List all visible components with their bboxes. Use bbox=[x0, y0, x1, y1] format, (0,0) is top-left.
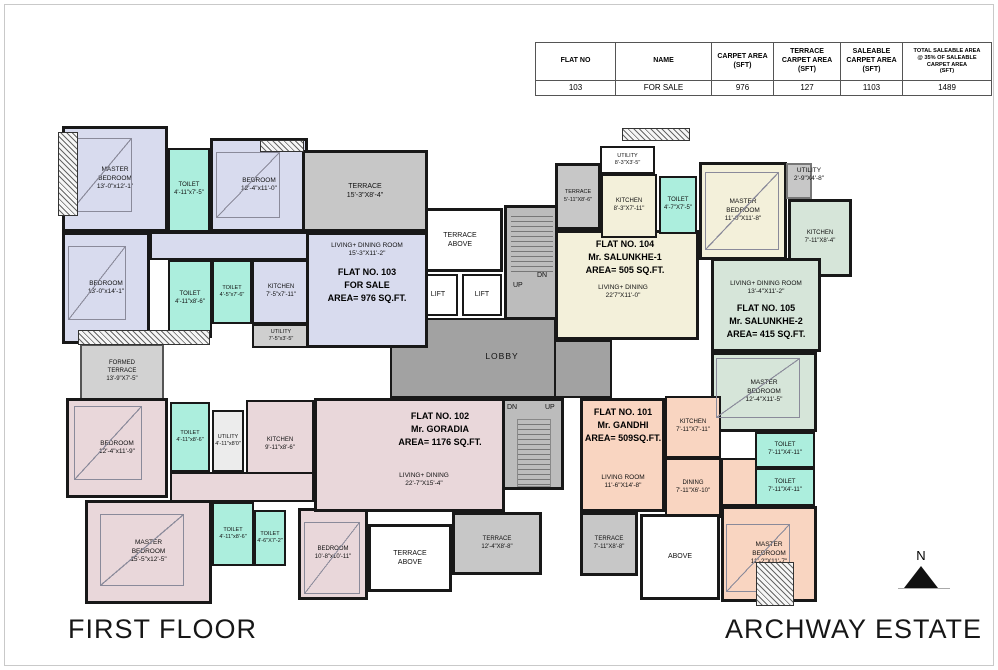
balcony-hatch-icon bbox=[622, 128, 690, 141]
north-arrow-baseline bbox=[898, 588, 950, 589]
stairs-top-dn-label: DN bbox=[537, 272, 547, 279]
room-formed-terrace: FORMED TERRACE 13'-9"X7'-5" bbox=[80, 344, 164, 400]
lift-1-label: LIFT bbox=[431, 290, 445, 299]
lift-2-label: LIFT bbox=[475, 290, 489, 299]
project-title: ARCHWAY ESTATE bbox=[725, 614, 982, 645]
room-flat101-dining: DINING 7'-11"X6'-10" bbox=[665, 458, 721, 518]
room-flat102-toilet-top: TOILET 4'-11"x8'-6" bbox=[170, 402, 210, 472]
stair-treads-icon bbox=[511, 212, 553, 274]
flat103-living-label: LIVING+ DINING ROOM 15'-3"X11'-2" bbox=[310, 242, 424, 259]
table-header-name: NAME bbox=[616, 43, 712, 81]
terrace-above-top-label: TERRACE ABOVE bbox=[443, 231, 476, 249]
room-flat102-toilet-small: TOILET 4'-6"X7'-2" bbox=[254, 510, 286, 566]
flat103-toilet-top-label: TOILET 4'-11"x7'-5" bbox=[174, 182, 204, 198]
flat102-flat-label: FLAT NO. 102 Mr. GORADIA AREA= 1176 SQ.F… bbox=[380, 410, 500, 449]
flat102-toilet-mid-label: TOILET 4'-11"x8'-6" bbox=[219, 527, 246, 541]
flat102-terrace-label: TERRACE 12'-4"X8'-8" bbox=[481, 536, 512, 552]
flat101-terrace-label: TERRACE 7'-11"X8'-8" bbox=[594, 536, 625, 552]
flat104-terrace-label: TERRACE 5'-11"X8'-6" bbox=[564, 189, 592, 203]
room-lobby-extension bbox=[554, 340, 612, 398]
stairs-bottom-dn-label: DN bbox=[507, 404, 517, 411]
flat102-toilet-top-label: TOILET 4'-11"x8'-6" bbox=[176, 430, 203, 444]
flat105-utility-label: UTILITY 2'-9"X4'-8" bbox=[786, 167, 832, 184]
balcony-hatch-icon bbox=[58, 132, 78, 216]
terrace-above-bottom-label: TERRACE ABOVE bbox=[393, 549, 426, 567]
flat103-kitchen-label: KITCHEN 7'-5"x7'-11" bbox=[266, 284, 296, 300]
balcony-hatch-icon bbox=[756, 562, 794, 606]
flat105-living-label: LIVING+ DINING ROOM 13'-4"X11'-2" bbox=[713, 280, 819, 297]
bed-icon bbox=[70, 138, 132, 212]
flat101-flat-label: FLAT NO. 101 Mr. GANDHI AREA= 509SQ.FT. bbox=[578, 406, 668, 445]
room-staircase-top: UP DN bbox=[504, 205, 560, 320]
room-flat104-kitchen: KITCHEN 8'-3"X7'-11" bbox=[601, 174, 657, 238]
flat103-flat-label: FLAT NO. 103 FOR SALE AREA= 976 SQ.FT. bbox=[310, 266, 424, 305]
floor-plan-sheet: FLAT NO NAME CARPET AREA (SFT) TERRACE C… bbox=[0, 0, 998, 670]
flat101-living-label: LIVING ROOM 11'-6"X14'-8" bbox=[582, 474, 664, 491]
room-above-open: ABOVE bbox=[640, 514, 720, 600]
flat105-toilet-lower-label: TOILET 7'-11"X4'-11" bbox=[768, 479, 802, 495]
balcony-hatch-icon bbox=[78, 330, 210, 345]
flat104-flat-label: FLAT NO. 104 Mr. SALUNKHE-1 AREA= 505 SQ… bbox=[560, 238, 690, 277]
room-flat101-kitchen: KITCHEN 7'-11"X7'-11" bbox=[665, 396, 721, 458]
room-flat103-kitchen: KITCHEN 7'-5"x7'-11" bbox=[252, 260, 310, 324]
flat102-kitchen-label: KITCHEN 9'-11"x8'-6" bbox=[265, 437, 295, 453]
room-flat101-terrace: TERRACE 7'-11"X8'-8" bbox=[580, 512, 638, 576]
flat104-toilet-label: TOILET 4'-7"X7'-5" bbox=[664, 197, 692, 213]
flat103-terrace-label: TERRACE 15'-3"X8'-4" bbox=[347, 182, 383, 200]
balcony-hatch-icon bbox=[260, 140, 304, 152]
flat102-living-label: LIVING+ DINING 22'-7"X15'-4" bbox=[370, 472, 478, 489]
flat102-utility-label: UTILITY 4'-11"x8'0" bbox=[215, 434, 240, 448]
table-cell-terrace-carpet-area: 127 bbox=[774, 81, 841, 96]
table-header-flat-no: FLAT NO bbox=[536, 43, 616, 81]
room-flat103-toilet-top: TOILET 4'-11"x7'-5" bbox=[168, 148, 210, 232]
stairs-top-up-label: UP bbox=[513, 282, 523, 289]
room-flat102-utility: UTILITY 4'-11"x8'0" bbox=[212, 410, 244, 472]
room-flat103-toilet-mid: TOILET 4'-11"x8'-6" bbox=[168, 260, 212, 338]
bed-icon bbox=[68, 246, 126, 320]
stairs-bottom-up-label: UP bbox=[545, 404, 555, 411]
room-flat102-terrace: TERRACE 12'-4"X8'-8" bbox=[452, 512, 542, 575]
room-flat103-corridor bbox=[150, 232, 308, 260]
room-flat105-toilet-upper: TOILET 7'-11"X4'-11" bbox=[755, 432, 815, 468]
flat-summary-table: FLAT NO NAME CARPET AREA (SFT) TERRACE C… bbox=[535, 42, 992, 96]
table-cell-saleable-carpet-area: 1103 bbox=[841, 81, 903, 96]
room-flat101-corridor bbox=[721, 458, 757, 506]
north-label: N bbox=[912, 548, 930, 565]
bed-icon bbox=[100, 514, 184, 586]
table-cell-flat-no: 103 bbox=[536, 81, 616, 96]
table-cell-name: FOR SALE bbox=[616, 81, 712, 96]
room-flat102-corridor bbox=[170, 472, 314, 502]
north-arrow-icon bbox=[904, 566, 938, 588]
flat105-toilet-upper-label: TOILET 7'-11"X4'-11" bbox=[768, 442, 802, 458]
table-cell-total-saleable-area: 1489 bbox=[903, 81, 992, 96]
flat104-kitchen-label: KITCHEN 8'-3"X7'-11" bbox=[614, 198, 645, 214]
flat103-toilet-small-label: TOILET 4'-5"x7'-6" bbox=[220, 285, 245, 299]
flat101-dining-label: DINING 7'-11"X6'-10" bbox=[676, 480, 710, 496]
room-flat103-utility: UTILITY 7'-5"x3'-5" bbox=[252, 324, 310, 348]
room-flat104-terrace: TERRACE 5'-11"X8'-6" bbox=[555, 163, 601, 230]
room-flat104-toilet: TOILET 4'-7"X7'-5" bbox=[659, 176, 697, 234]
flat103-utility-label: UTILITY 7'-5"x3'-5" bbox=[269, 329, 294, 343]
table-header-terrace-carpet-area: TERRACE CARPET AREA (SFT) bbox=[774, 43, 841, 81]
bed-icon bbox=[74, 406, 142, 480]
room-terrace-above-bottom: TERRACE ABOVE bbox=[368, 524, 452, 592]
floor-title: FIRST FLOOR bbox=[68, 614, 257, 645]
flat102-toilet-small-label: TOILET 4'-6"X7'-2" bbox=[257, 531, 283, 545]
bed-icon bbox=[716, 358, 800, 418]
room-flat103-toilet-small: TOILET 4'-5"x7'-6" bbox=[212, 260, 252, 324]
flat103-toilet-mid-label: TOILET 4'-11"x8'-6" bbox=[175, 291, 205, 307]
bed-icon bbox=[216, 152, 280, 218]
room-terrace-above-top: TERRACE ABOVE bbox=[417, 208, 503, 272]
table-cell-carpet-area: 976 bbox=[712, 81, 774, 96]
flat104-utility-label: UTILITY 8'-3"X3'-5" bbox=[615, 153, 641, 167]
formed-terrace-label: FORMED TERRACE 13'-9"X7'-5" bbox=[106, 360, 137, 383]
room-staircase-bottom: DN UP bbox=[500, 398, 564, 490]
room-flat102-toilet-mid: TOILET 4'-11"x8'-6" bbox=[212, 502, 254, 566]
flat104-living-label: LIVING+ DINING 22'7"X11'-0" bbox=[568, 284, 678, 301]
stair-treads-icon bbox=[517, 419, 551, 487]
lobby-label: LOBBY bbox=[470, 351, 534, 362]
room-lift-2: LIFT bbox=[462, 274, 502, 316]
bed-icon bbox=[705, 172, 779, 250]
flat101-kitchen-label: KITCHEN 7'-11"X7'-11" bbox=[676, 419, 710, 435]
table-header-carpet-area: CARPET AREA (SFT) bbox=[712, 43, 774, 81]
flat105-flat-label: FLAT NO. 105 Mr. SALUNKHE-2 AREA= 415 SQ… bbox=[713, 302, 819, 341]
bed-icon bbox=[304, 522, 360, 594]
room-flat103-terrace: TERRACE 15'-3"X8'-4" bbox=[302, 150, 428, 232]
room-flat104-utility: UTILITY 8'-3"X3'-5" bbox=[600, 146, 655, 174]
table-header-saleable-carpet-area: SALEABLE CARPET AREA (SFT) bbox=[841, 43, 903, 81]
room-flat105-toilet-lower: TOILET 7'-11"X4'-11" bbox=[755, 468, 815, 506]
flat105-kitchen-label: KITCHEN 7'-11"X8'-4" bbox=[805, 230, 836, 246]
table-header-total-saleable-area: TOTAL SALEABLE AREA @ 35% OF SALEABLE CA… bbox=[903, 43, 992, 81]
above-label: ABOVE bbox=[668, 552, 692, 561]
